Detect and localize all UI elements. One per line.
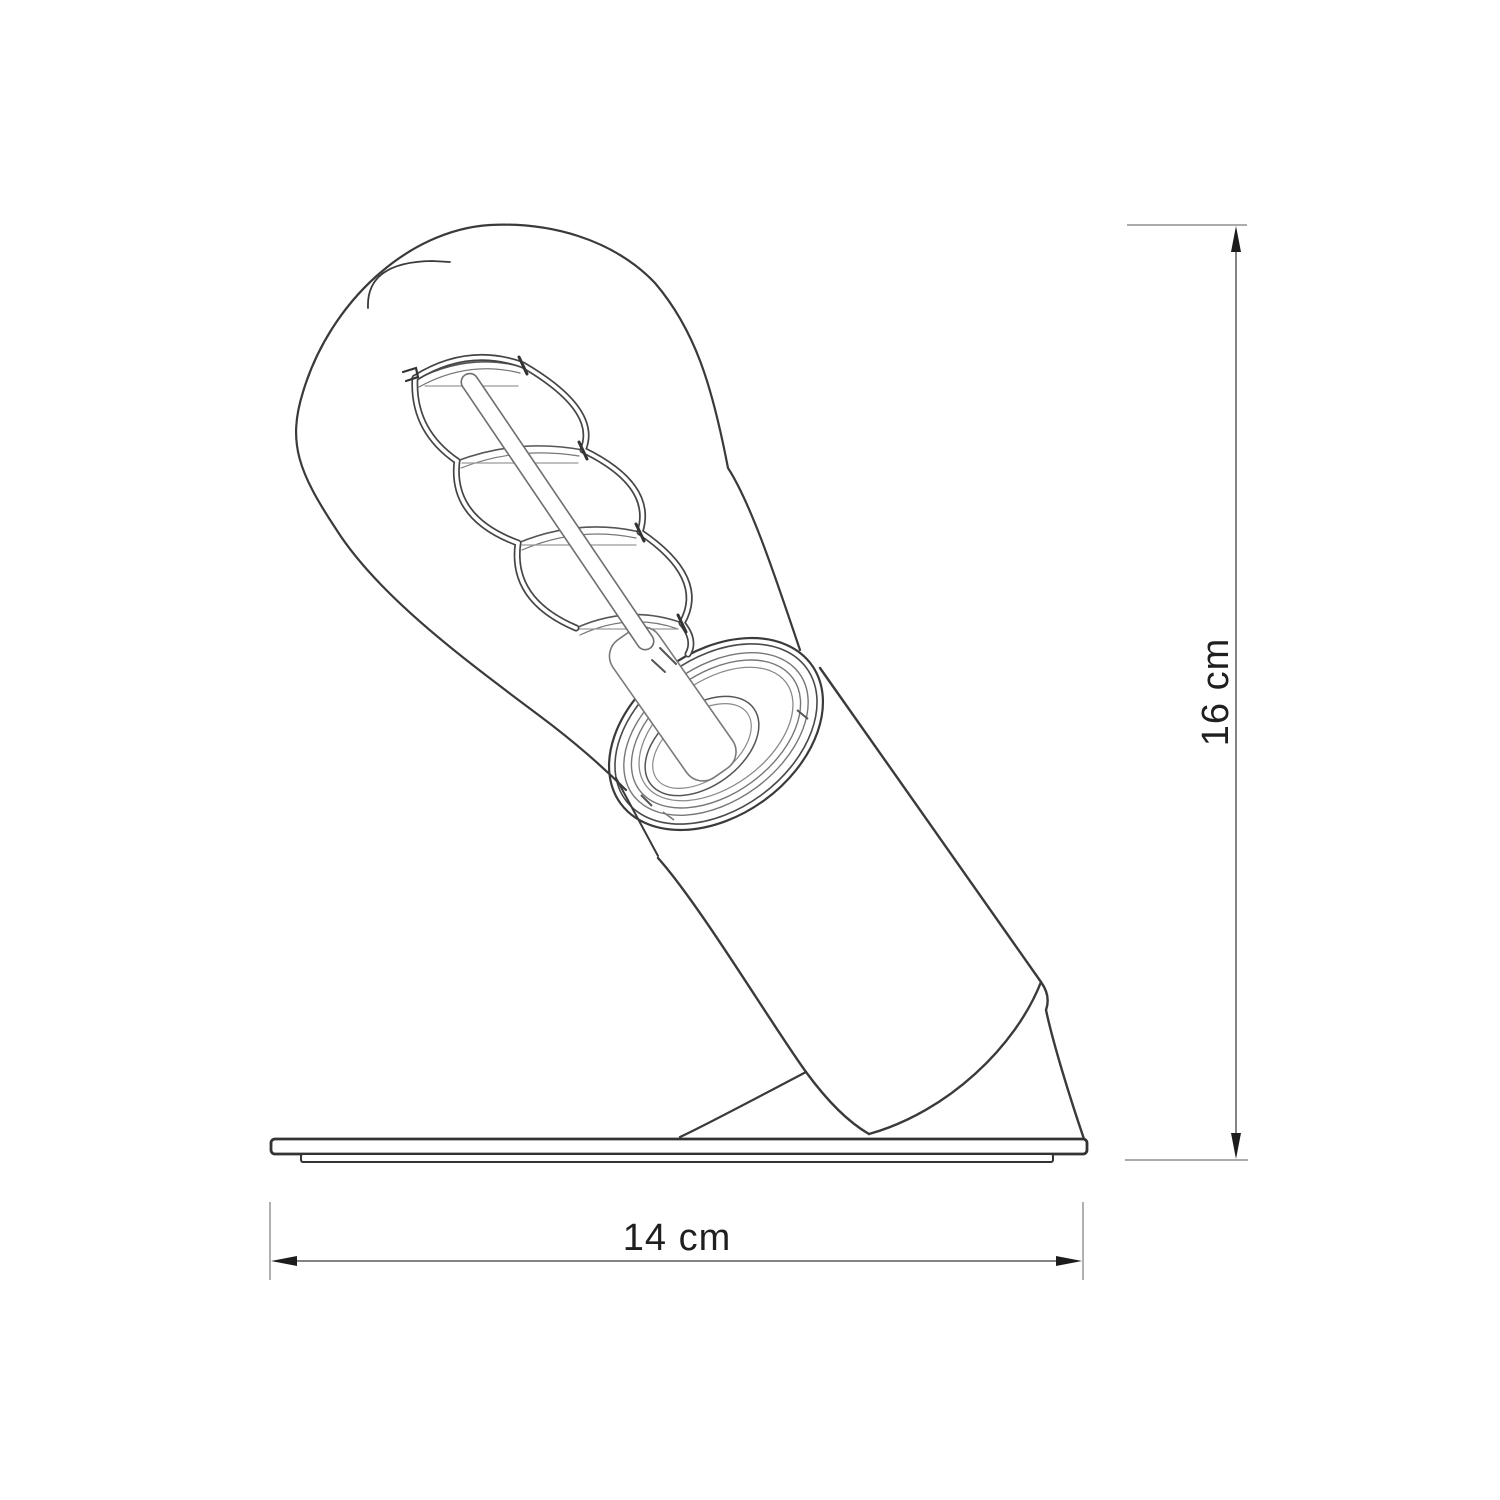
height-dimension: 16 cm	[1125, 225, 1248, 1160]
lamp-dimension-diagram: 16 cm 14 cm	[0, 0, 1500, 1500]
base-plate	[271, 1139, 1087, 1162]
base-plate-top	[271, 1139, 1087, 1154]
support-wedge	[680, 1072, 806, 1137]
arrow-left-icon	[271, 1256, 297, 1266]
arrow-up-icon	[1231, 226, 1241, 252]
arrow-right-icon	[1056, 1256, 1082, 1266]
base-plate-lip	[301, 1154, 1053, 1162]
width-dimension: 14 cm	[270, 1202, 1083, 1280]
technical-drawing-canvas: 16 cm 14 cm	[0, 0, 1500, 1500]
bulb-stem	[458, 370, 744, 789]
arrow-down-icon	[1231, 1133, 1241, 1159]
height-dimension-label: 16 cm	[1195, 638, 1237, 746]
glass-highlight	[368, 261, 450, 308]
filament-spiral	[403, 357, 691, 672]
width-dimension-label: 14 cm	[623, 1217, 731, 1259]
stem-axis-bar	[458, 370, 657, 653]
